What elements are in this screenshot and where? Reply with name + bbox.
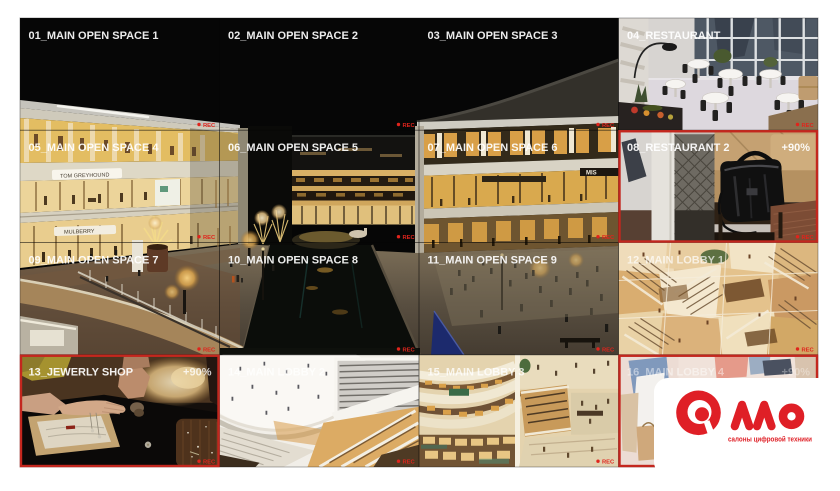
svg-text:14_MAIN LOBBY 2: 14_MAIN LOBBY 2 <box>228 367 325 379</box>
svg-text:07_MAIN OPEN SPACE 6: 07_MAIN OPEN SPACE 6 <box>428 142 558 154</box>
svg-text:09_MAIN OPEN SPACE 7: 09_MAIN OPEN SPACE 7 <box>29 255 159 267</box>
svg-text:08_RESTAURANT 2: 08_RESTAURANT 2 <box>627 142 730 154</box>
svg-text:03_MAIN OPEN SPACE 3: 03_MAIN OPEN SPACE 3 <box>428 30 558 42</box>
svg-text:REC: REC <box>602 235 615 241</box>
svg-text:+90%: +90% <box>183 367 212 379</box>
svg-text:REC: REC <box>802 348 815 354</box>
svg-text:+90%: +90% <box>782 142 811 154</box>
svg-text:05_MAIN OPEN SPACE 4: 05_MAIN OPEN SPACE 4 <box>29 142 160 154</box>
svg-text:REC: REC <box>403 235 416 241</box>
svg-text:REC: REC <box>602 348 615 354</box>
svg-text:REC: REC <box>802 123 815 129</box>
svg-text:REC: REC <box>403 123 416 129</box>
svg-text:MULBERRY: MULBERRY <box>64 229 95 236</box>
svg-text:02_MAIN OPEN SPACE 2: 02_MAIN OPEN SPACE 2 <box>228 30 358 42</box>
svg-text:салоны цифровой техники: салоны цифровой техники <box>728 436 812 444</box>
svg-text:11_MAIN OPEN SPACE 9: 11_MAIN OPEN SPACE 9 <box>428 255 557 267</box>
svg-text:04_RESTAURANT: 04_RESTAURANT <box>627 30 721 42</box>
svg-text:REC: REC <box>203 348 216 354</box>
svg-text:15_MAIN LOBBY 3: 15_MAIN LOBBY 3 <box>428 367 525 379</box>
svg-text:16_MAIN LOBBY 4: 16_MAIN LOBBY 4 <box>627 367 725 379</box>
svg-text:10_MAIN OPEN SPACE 8: 10_MAIN OPEN SPACE 8 <box>228 255 358 267</box>
svg-text:REC: REC <box>203 460 216 466</box>
svg-text:REC: REC <box>203 235 216 241</box>
svg-text:01_MAIN OPEN SPACE 1: 01_MAIN OPEN SPACE 1 <box>29 30 159 42</box>
svg-text:REC: REC <box>203 123 216 129</box>
svg-text:12_MAIN LOBBY 1: 12_MAIN LOBBY 1 <box>627 255 724 267</box>
svg-text:REC: REC <box>602 123 615 129</box>
svg-text:REC: REC <box>403 348 416 354</box>
svg-text:+90%: +90% <box>782 367 811 379</box>
svg-text:MIS: MIS <box>586 171 597 177</box>
svg-text:REC: REC <box>802 235 815 241</box>
svg-text:13_JEWERLY SHOP: 13_JEWERLY SHOP <box>29 367 134 379</box>
svg-text:06_MAIN OPEN SPACE 5: 06_MAIN OPEN SPACE 5 <box>228 142 358 154</box>
svg-text:REC: REC <box>602 460 615 466</box>
svg-text:REC: REC <box>403 460 416 466</box>
